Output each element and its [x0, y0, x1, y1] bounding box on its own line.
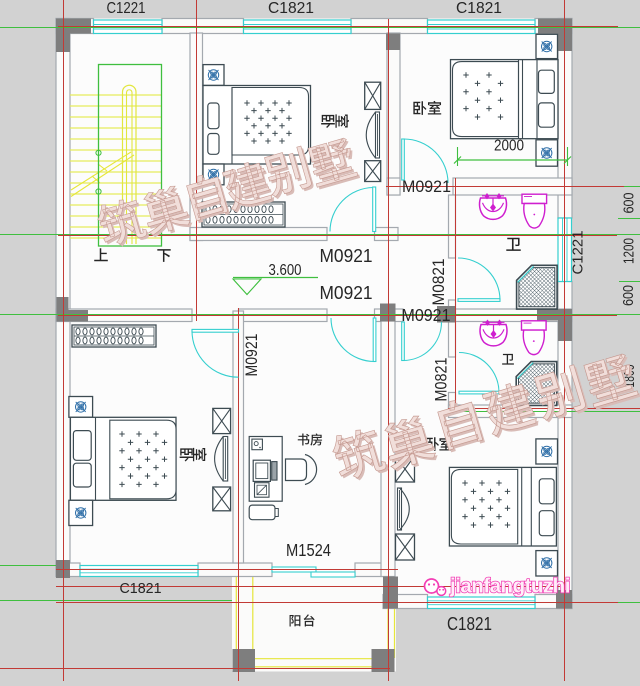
svg-text:M0921: M0921: [243, 334, 261, 377]
svg-text:C1221: C1221: [107, 0, 146, 17]
svg-text:600: 600: [622, 193, 638, 214]
svg-text:C1821: C1821: [120, 580, 162, 597]
svg-text:jianfangtuzhi: jianfangtuzhi: [449, 575, 570, 598]
svg-text:C1221: C1221: [570, 231, 587, 275]
svg-text:M0921: M0921: [402, 177, 451, 196]
svg-text:M0921: M0921: [320, 246, 373, 266]
svg-text:2000: 2000: [494, 138, 524, 155]
svg-text:C1821: C1821: [268, 0, 314, 17]
svg-text:600: 600: [621, 285, 637, 306]
svg-text:M0821: M0821: [432, 358, 451, 402]
svg-text:M0821: M0821: [429, 259, 448, 306]
svg-text:M0921: M0921: [402, 305, 451, 325]
svg-text:C1821: C1821: [456, 0, 502, 17]
svg-text:3.600: 3.600: [269, 262, 302, 279]
svg-text:M1524: M1524: [286, 540, 331, 560]
svg-text:1200: 1200: [622, 238, 638, 264]
svg-text:M0921: M0921: [320, 283, 373, 303]
svg-text:C1821: C1821: [447, 614, 492, 634]
